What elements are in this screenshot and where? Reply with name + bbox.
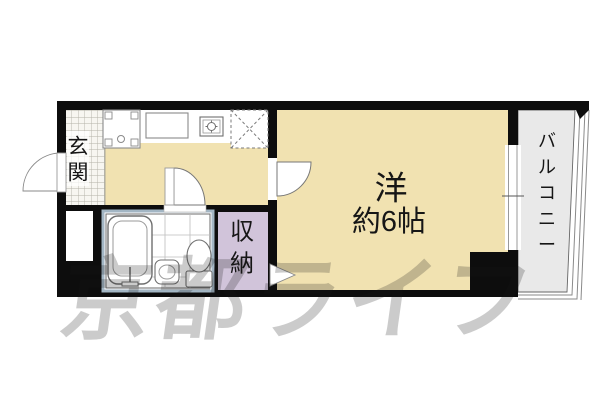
bathroom-door-threshold [164,205,206,212]
kitchen-appliances [103,110,268,148]
entrance-door-swing-arc [23,153,61,191]
window [502,145,524,250]
balcony-label-char3: コ [538,183,556,203]
western-room-label: 洋 [375,170,408,207]
entrance-label-char2: 関 [68,162,89,185]
balcony-label-char2: ル [538,157,556,177]
bathroom-door-leaf [165,168,174,205]
wall-corner-wedge [576,110,589,119]
floorplan-drawing: 玄 関 洋 約6帖 収 納 バ ル コ ニ ー 京都ライフ [0,0,600,400]
entrance-door [23,153,66,192]
storage-label-char1: 収 [230,219,254,246]
balcony-label-char1: バ [538,131,556,151]
refrigerator-space [231,110,268,148]
western-room-size-label: 約6帖 [352,205,426,238]
entrance-door-leaf [57,153,66,192]
entrance-label-char1: 玄 [68,136,89,159]
balcony-label-char4: ニ [538,209,556,229]
kitchen-counter [146,113,188,138]
washing-machine-pan [103,110,140,148]
room-door-opening [268,158,277,200]
watermark-text: 京都ライフ [55,250,544,351]
floorplan-canvas: 玄 関 洋 約6帖 収 納 バ ル コ ニ ー 京都ライフ [0,0,600,400]
gas-stove [200,117,223,136]
